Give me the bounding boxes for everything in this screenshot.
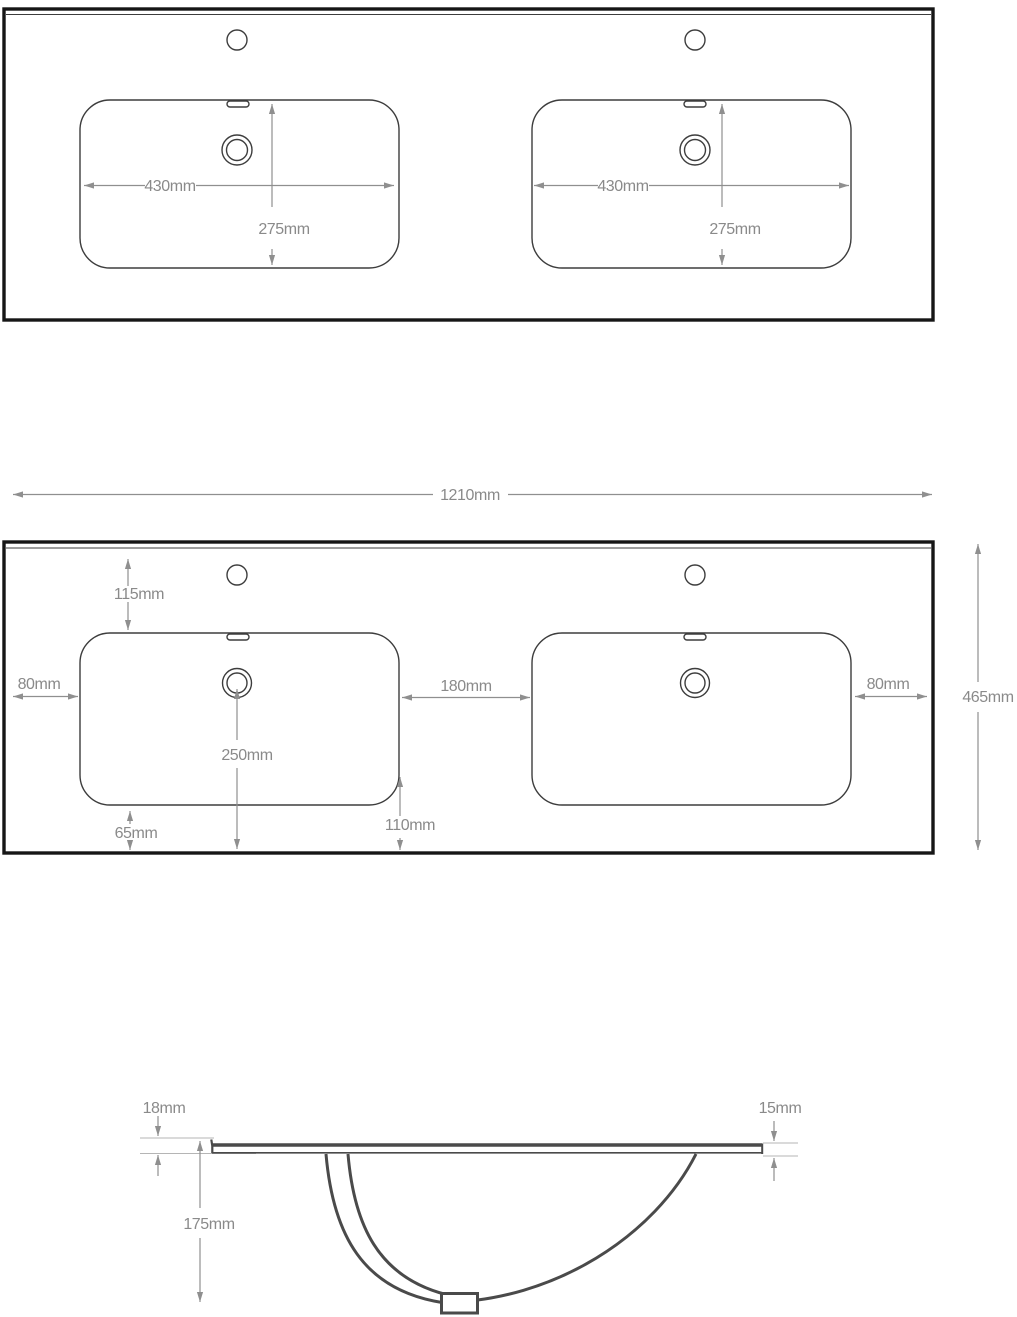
dim-label-between-basins: 180mm bbox=[440, 678, 491, 695]
dim-label-basin-width-left: 430mm bbox=[144, 178, 195, 195]
dim-label-basin-depth-left: 275mm bbox=[258, 221, 309, 238]
dim-label-drain-front: 250mm bbox=[221, 747, 272, 764]
basin-left-outline-2 bbox=[80, 633, 399, 805]
bowl-outer-profile bbox=[326, 1154, 696, 1303]
tap-hole-right bbox=[685, 30, 705, 50]
dim-label-basin-depth-right: 275mm bbox=[709, 221, 760, 238]
tap-hole-left-2 bbox=[227, 565, 247, 585]
dim-label-overall-width: 1210mm bbox=[440, 487, 500, 504]
basin-left-outline bbox=[80, 100, 399, 268]
dim-label-left-margin: 80mm bbox=[18, 676, 61, 693]
drain-outlet bbox=[442, 1294, 478, 1314]
bowl-inner-profile bbox=[348, 1154, 446, 1295]
overflow-slot-right bbox=[684, 101, 706, 107]
dim-label-right-thickness: 15mm bbox=[759, 1100, 802, 1117]
dim-label-right-margin: 80mm bbox=[867, 676, 910, 693]
basin-right-outline-2 bbox=[532, 633, 851, 805]
technical-drawing-double-basin: 430mm 275mm 430mm 275mm 1210mm bbox=[0, 0, 1017, 1317]
dim-label-left-thickness: 18mm bbox=[143, 1100, 186, 1117]
slab-left-lip bbox=[211, 1140, 212, 1154]
overflow-slot-right-2 bbox=[684, 634, 706, 640]
tap-hole-right-2 bbox=[685, 565, 705, 585]
dim-label-basin-front: 65mm bbox=[115, 825, 158, 842]
overall-width-dimension: 1210mm bbox=[13, 487, 932, 504]
overflow-slot-left-2 bbox=[227, 634, 249, 640]
dim-label-corner-front: 110mm bbox=[385, 817, 435, 834]
tap-hole-left bbox=[227, 30, 247, 50]
dim-label-basin-width-right: 430mm bbox=[597, 178, 648, 195]
plan-view: 430mm 275mm 430mm 275mm bbox=[4, 9, 933, 320]
dim-label-bowl-depth: 175mm bbox=[183, 1216, 234, 1233]
section-view: 18mm 15mm 175mm bbox=[140, 1100, 801, 1313]
dim-label-tap-offset: 115mm bbox=[114, 586, 164, 603]
overflow-slot-left bbox=[227, 101, 249, 107]
plan-margin-view: 115mm 80mm 180mm 80mm 250mm 65mm 110mm 4… bbox=[4, 542, 1014, 853]
basin-right-outline bbox=[532, 100, 851, 268]
dim-label-overall-depth: 465mm bbox=[962, 689, 1013, 706]
